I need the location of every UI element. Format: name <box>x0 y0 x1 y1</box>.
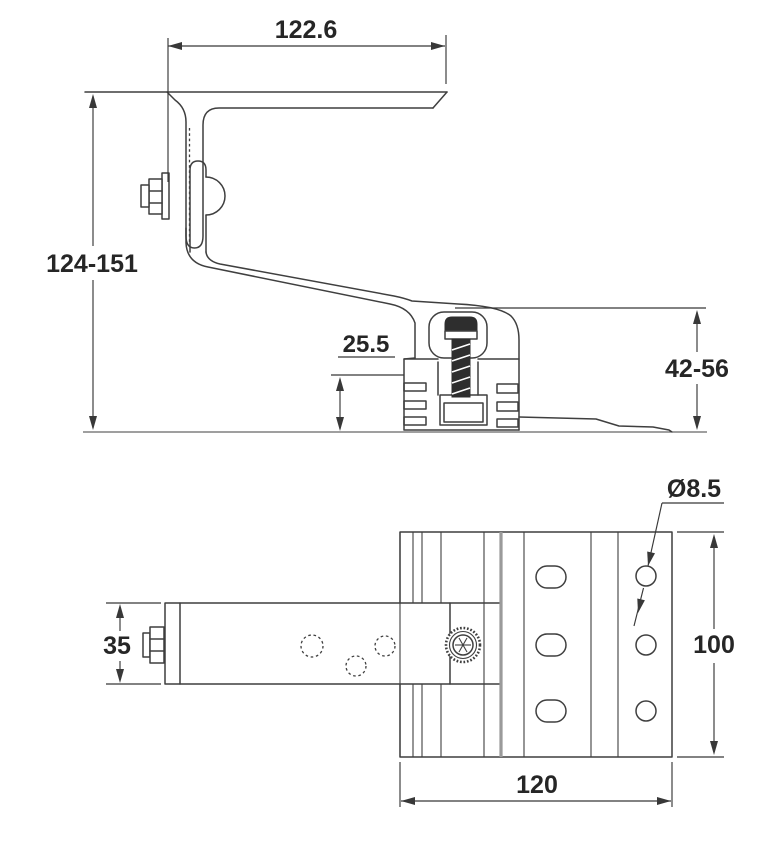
dim-label-base-inset: 25.5 <box>343 331 390 358</box>
dim-label-overall-height: 124-151 <box>46 250 138 278</box>
hex-bolt-plan <box>143 627 164 663</box>
drawing-canvas: 122.6 124-151 25.5 42-56 <box>0 0 776 848</box>
base-plate-side <box>519 417 672 432</box>
dim-plate-width: 120 <box>400 762 672 807</box>
hex-nut <box>150 627 164 663</box>
side-view: 122.6 124-151 25.5 42-56 <box>46 16 729 432</box>
dim-label-hole-diameter: Ø8.5 <box>667 475 721 503</box>
technical-drawing-page: 122.6 124-151 25.5 42-56 <box>0 0 776 848</box>
bolt-washer <box>445 331 477 339</box>
slot-hole <box>536 634 566 656</box>
plan-view: Ø8.5 35 100 <box>103 475 735 807</box>
dim-base-inset: 25.5 <box>331 331 404 431</box>
bolt-tip <box>141 185 149 207</box>
nut-pocket <box>440 395 487 425</box>
upper-arm <box>167 92 433 248</box>
dim-label-plate-width: 120 <box>516 771 558 799</box>
dim-flange-width: 122.6 <box>168 16 446 182</box>
round-hole <box>636 566 656 586</box>
dim-label-flange-width: 122.6 <box>275 16 338 44</box>
adjustment-screw-head <box>446 628 480 662</box>
bolt-head <box>445 317 477 331</box>
dim-plate-depth: 100 <box>677 532 735 757</box>
top-flange <box>85 92 447 248</box>
dim-overall-height: 124-151 <box>46 94 138 430</box>
bolt-tip <box>143 633 150 657</box>
slot-hole <box>536 700 566 722</box>
round-hole <box>636 701 656 721</box>
dim-rail-height: 42-56 <box>455 308 729 430</box>
round-hole <box>636 635 656 655</box>
dim-label-rail-height: 42-56 <box>665 355 729 383</box>
hex-nut <box>149 179 162 214</box>
dim-label-plate-depth: 100 <box>693 631 735 659</box>
flange-end-bevel <box>433 92 447 108</box>
slot-hole <box>536 566 566 588</box>
carriage-bolt-dome <box>206 177 225 215</box>
dim-label-arm-width: 35 <box>103 632 131 660</box>
clamp-bolt-side <box>141 173 169 219</box>
rail-bolt <box>445 317 477 397</box>
